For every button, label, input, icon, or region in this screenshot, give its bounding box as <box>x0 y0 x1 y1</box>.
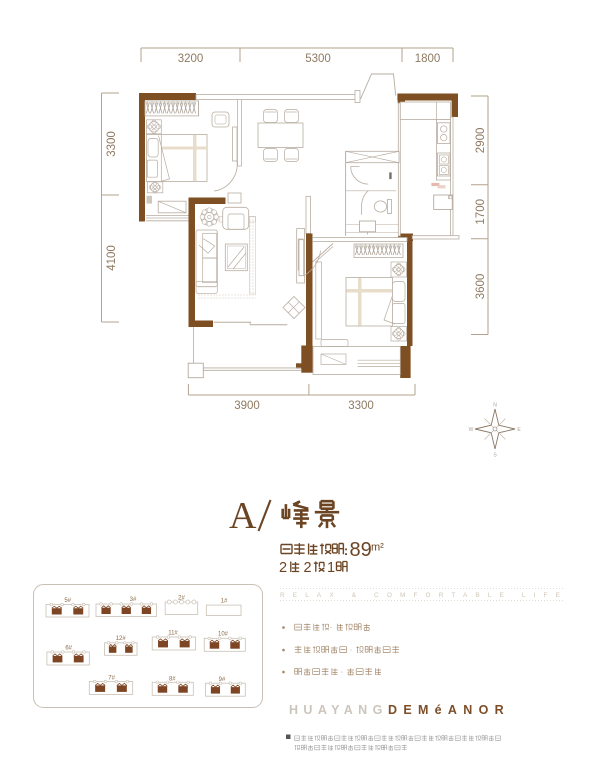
svg-text:N: N <box>493 403 497 409</box>
svg-text:·: · <box>350 646 353 655</box>
svg-text:1: 1 <box>327 560 335 576</box>
svg-text:4100: 4100 <box>106 245 118 271</box>
svg-text:HUAYANG: HUAYANG <box>289 703 388 717</box>
svg-text:3300: 3300 <box>106 131 118 157</box>
svg-text:1#: 1# <box>221 599 228 605</box>
svg-text:11#: 11# <box>168 631 178 637</box>
svg-text:8#: 8# <box>169 676 176 682</box>
svg-text:5#: 5# <box>64 598 71 604</box>
svg-text:3900: 3900 <box>234 400 260 412</box>
svg-text:89: 89 <box>350 539 372 561</box>
svg-text:3600: 3600 <box>475 274 487 300</box>
svg-text:1800: 1800 <box>415 53 441 65</box>
svg-text:5300: 5300 <box>305 53 331 65</box>
svg-text:2: 2 <box>279 560 287 576</box>
svg-text:6#: 6# <box>65 646 72 652</box>
svg-text:3#: 3# <box>130 597 137 603</box>
svg-text:·: · <box>341 668 344 677</box>
svg-text:RELAX & COMFORTABLE LIFE: RELAX & COMFORTABLE LIFE <box>280 592 565 599</box>
svg-text:W: W <box>469 427 474 433</box>
svg-text:3200: 3200 <box>178 53 204 65</box>
svg-text:·: · <box>330 623 333 632</box>
svg-text:2: 2 <box>303 560 311 576</box>
svg-text:A: A <box>229 495 257 537</box>
svg-text:12#: 12# <box>116 636 127 642</box>
svg-text:3300: 3300 <box>348 400 374 412</box>
svg-text:1700: 1700 <box>475 199 487 225</box>
svg-text:m²: m² <box>371 542 384 554</box>
svg-text:7#: 7# <box>108 676 115 682</box>
svg-text:DEMéANOR: DEMéANOR <box>388 703 510 717</box>
svg-text:2900: 2900 <box>475 128 487 154</box>
svg-text::: : <box>344 543 348 558</box>
